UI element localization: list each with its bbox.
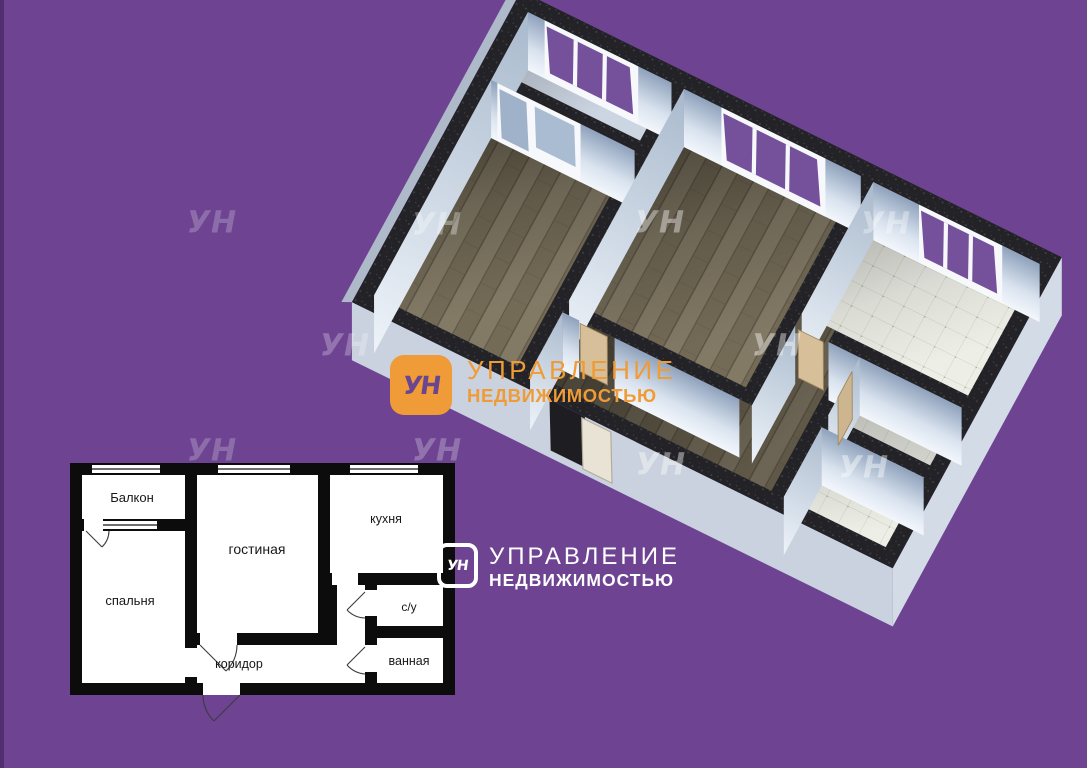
- logo-orange-line1: УПРАВЛЕНИЕ: [467, 356, 676, 385]
- plan-label-kitchen: кухня: [370, 512, 402, 526]
- logo-un-white: УН УПРАВЛЕНИЕ НЕДВИЖИМОСТЬЮ: [437, 543, 680, 590]
- logo-white-line1: УПРАВЛЕНИЕ: [489, 543, 680, 570]
- watermark-un: УН: [412, 208, 462, 243]
- watermark-un: УН: [839, 451, 889, 486]
- plan-label-balcony: Балкон: [110, 490, 154, 505]
- logo-orange-line2: НЕДВИЖИМОСТЬЮ: [467, 385, 676, 406]
- logo-un-orange: УН УПРАВЛЕНИЕ НЕДВИЖИМОСТЬЮ: [390, 355, 676, 415]
- logo-white-line2: НЕДВИЖИМОСТЬЮ: [489, 570, 680, 590]
- un-monogram-letters-white: УН: [446, 558, 469, 574]
- watermark-un: УН: [635, 206, 685, 241]
- logo-orange-text: УПРАВЛЕНИЕ НЕДВИЖИМОСТЬЮ: [467, 355, 676, 406]
- watermark-un: УН: [861, 207, 911, 242]
- watermark-un: УН: [636, 448, 686, 483]
- plan-label-living: гостиная: [229, 541, 286, 557]
- un-monogram-outline-icon: УН: [437, 543, 478, 588]
- plan-label-wc: с/у: [401, 600, 416, 614]
- plan-label-corridor: коридор: [215, 657, 263, 671]
- watermark-un: УН: [752, 329, 802, 364]
- un-monogram-letters: УН: [401, 371, 441, 400]
- logo-white-text: УПРАВЛЕНИЕ НЕДВИЖИМОСТЬЮ: [489, 543, 680, 590]
- plan-label-bath: ванная: [389, 654, 430, 668]
- poster: УНУНУНУНУНУНУНУНУНУН: [0, 0, 1087, 768]
- plan-label-bedroom: спальня: [105, 593, 154, 608]
- watermark-un: УН: [320, 329, 370, 364]
- watermark-un: УН: [187, 206, 237, 241]
- floorplan-2d: Балкон спальня гостиная кухня с/у ванная…: [60, 455, 470, 755]
- un-monogram-icon: УН: [390, 355, 452, 415]
